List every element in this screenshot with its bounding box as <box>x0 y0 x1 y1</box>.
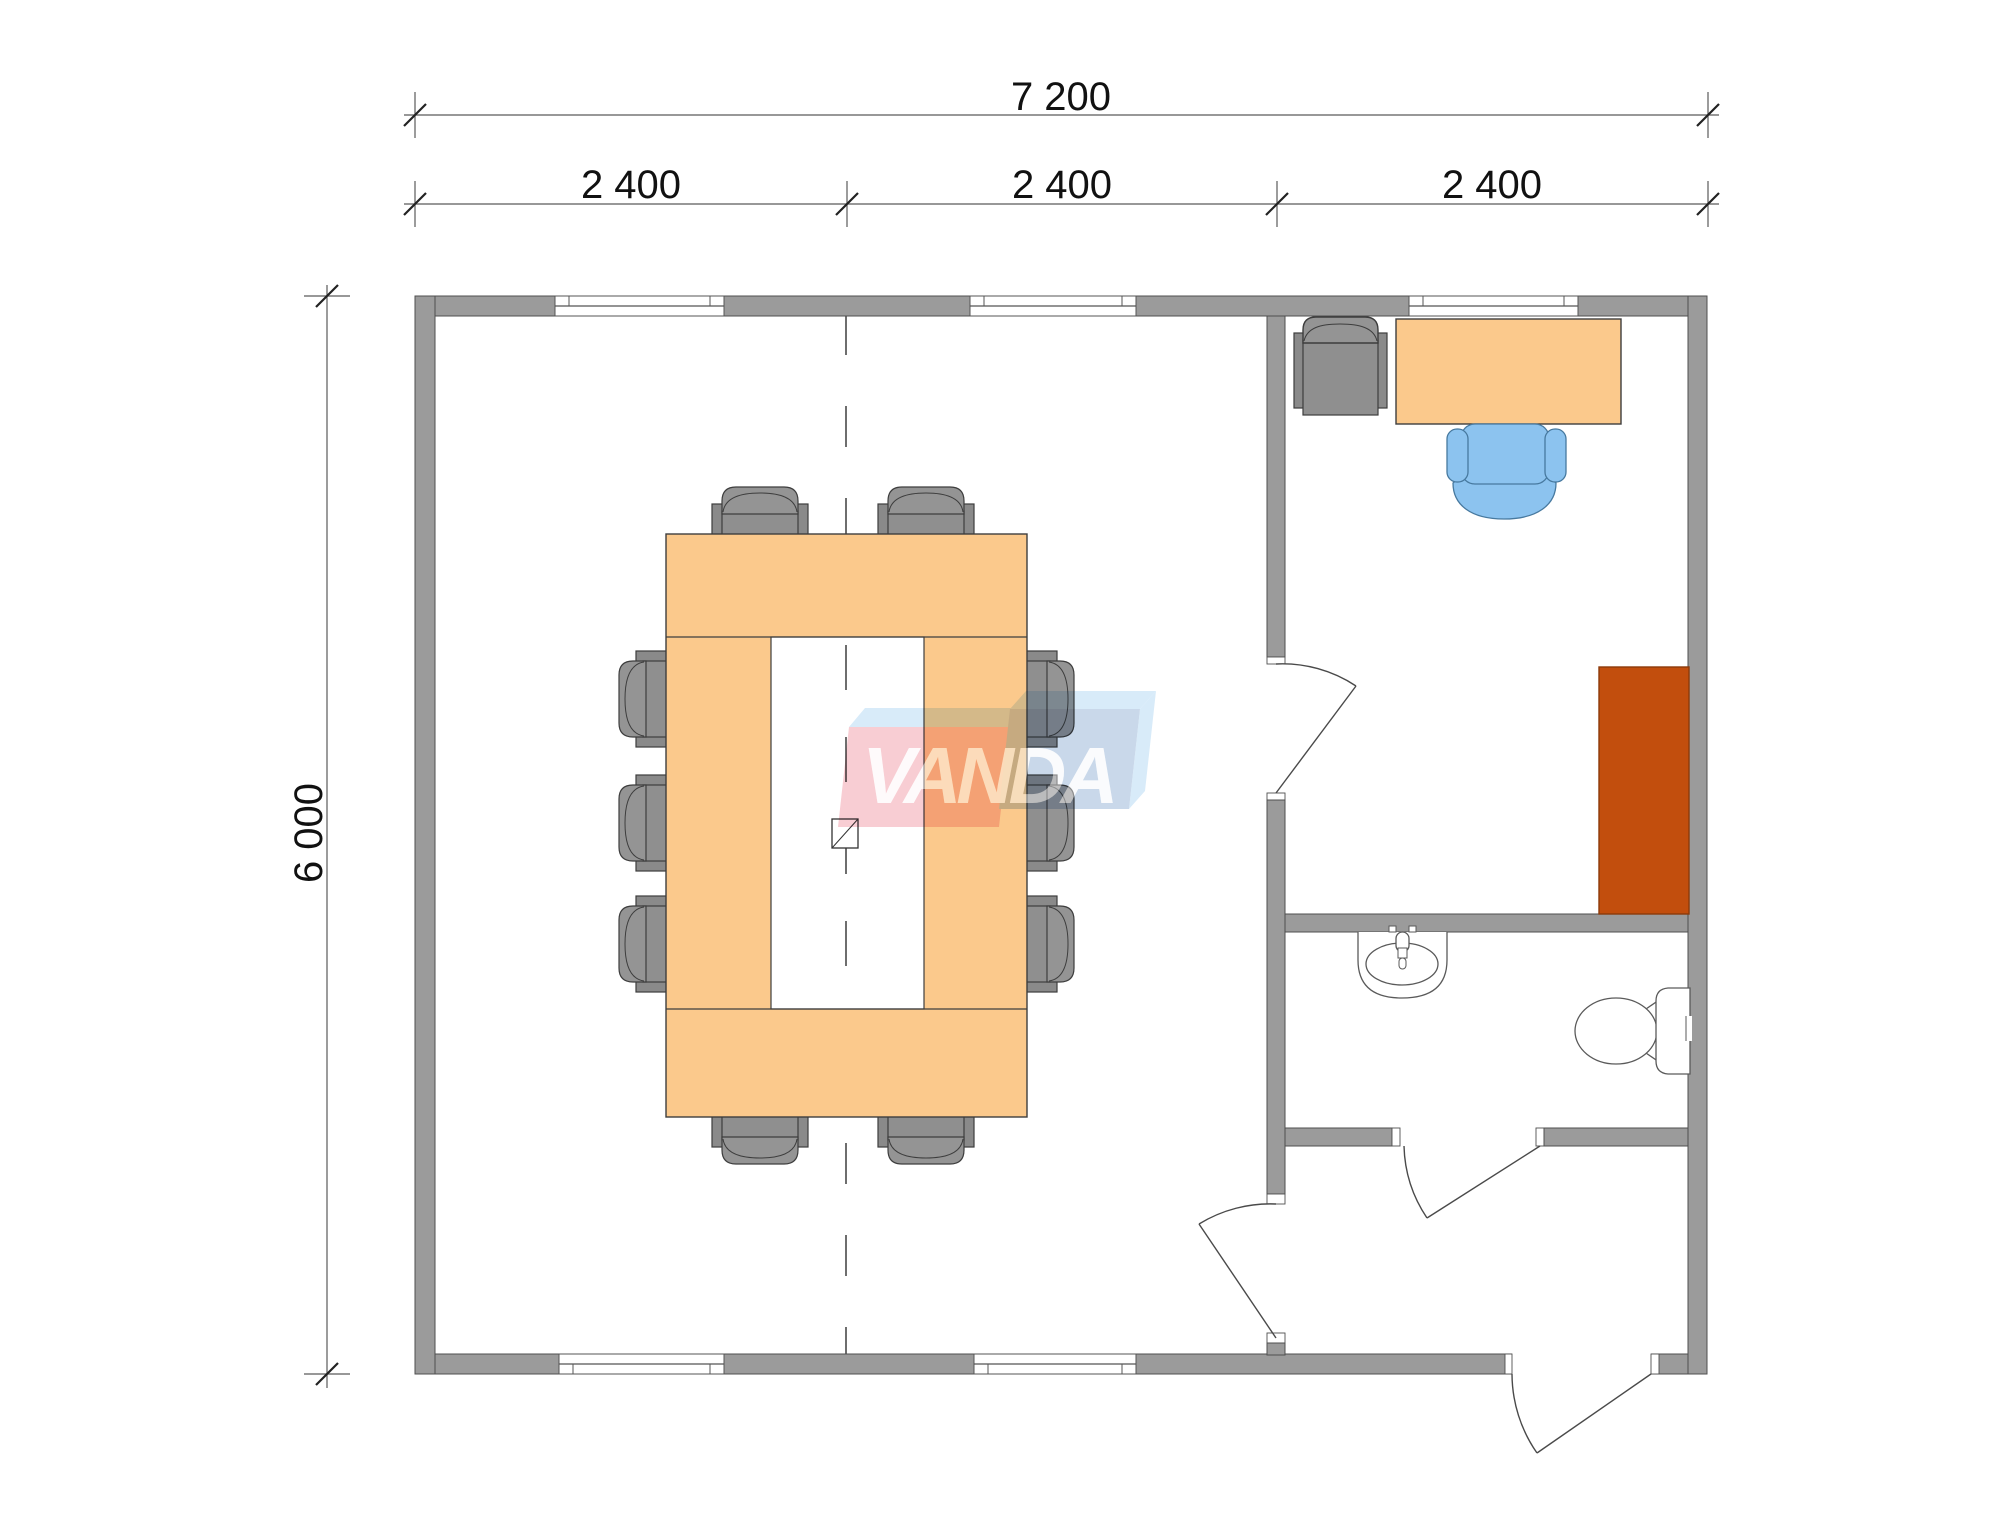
svg-text:2 400: 2 400 <box>1012 163 1112 207</box>
svg-text:7 200: 7 200 <box>1011 75 1111 119</box>
svg-text:VANDA: VANDA <box>862 731 1113 820</box>
svg-text:2 400: 2 400 <box>1442 163 1542 207</box>
svg-text:6 000: 6 000 <box>287 783 331 883</box>
svg-text:2 400: 2 400 <box>581 163 681 207</box>
